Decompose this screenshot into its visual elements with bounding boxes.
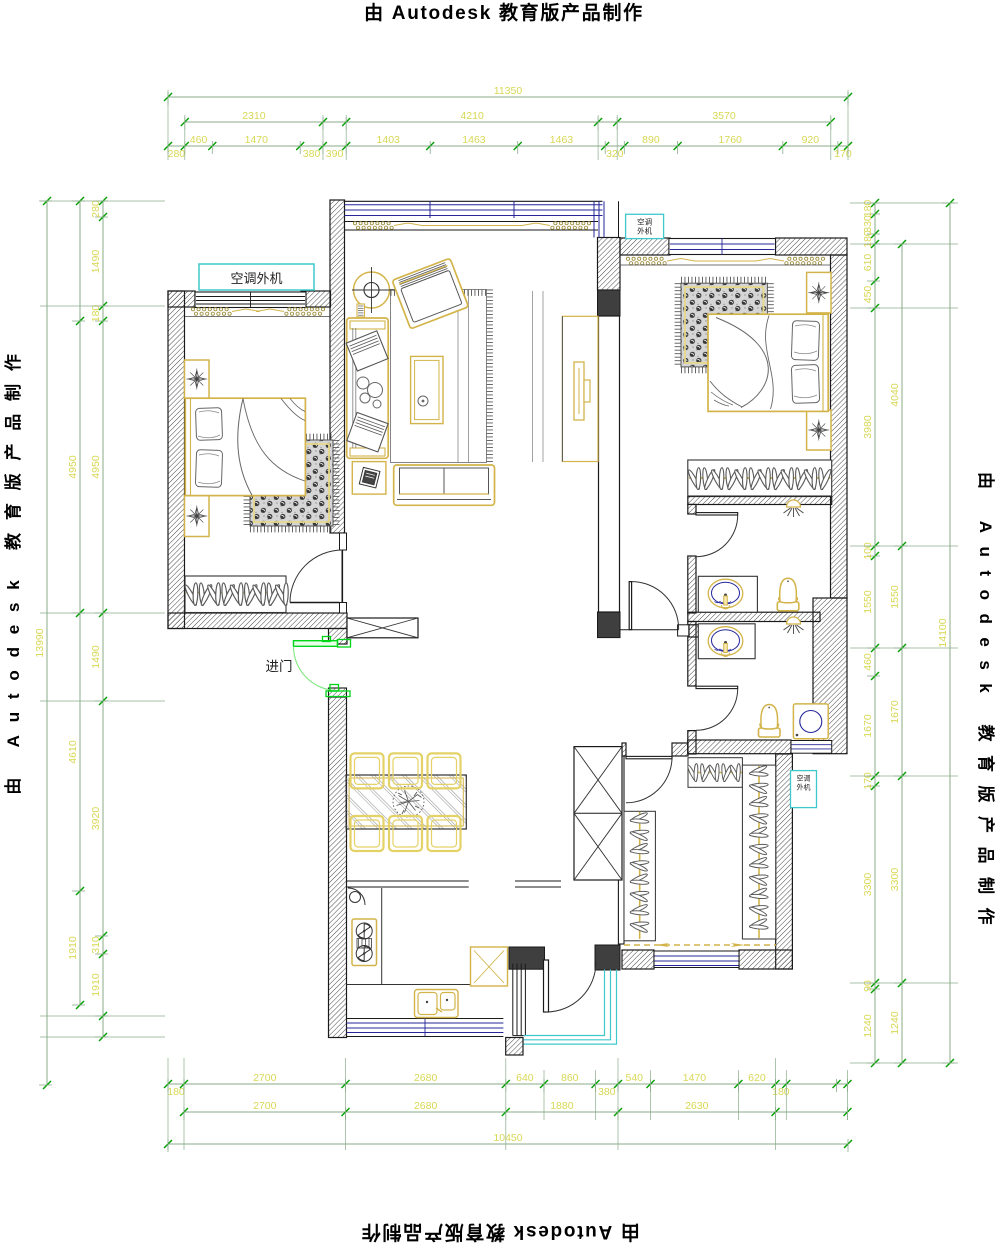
svg-text:1490: 1490 bbox=[90, 645, 102, 669]
svg-text:1760: 1760 bbox=[719, 134, 743, 146]
svg-text:1463: 1463 bbox=[462, 134, 486, 146]
svg-text:2310: 2310 bbox=[242, 110, 266, 122]
svg-text:540: 540 bbox=[625, 1072, 643, 1084]
svg-text:2680: 2680 bbox=[414, 1100, 438, 1112]
svg-text:2700: 2700 bbox=[253, 1072, 277, 1084]
svg-text:460: 460 bbox=[862, 653, 874, 671]
svg-text:空调: 空调 bbox=[797, 774, 811, 783]
svg-text:10450: 10450 bbox=[493, 1132, 522, 1144]
svg-text:460: 460 bbox=[190, 134, 208, 146]
svg-text:由 Autodesk 教育版产品制作: 由 Autodesk 教育版产品制作 bbox=[360, 1221, 640, 1244]
svg-text:180: 180 bbox=[862, 230, 874, 248]
svg-text:620: 620 bbox=[748, 1072, 766, 1084]
svg-text:1470: 1470 bbox=[683, 1072, 707, 1084]
svg-text:1550: 1550 bbox=[889, 585, 901, 609]
svg-text:2680: 2680 bbox=[414, 1072, 438, 1084]
svg-text:1470: 1470 bbox=[245, 134, 269, 146]
svg-text:14100: 14100 bbox=[937, 618, 949, 647]
svg-text:4040: 4040 bbox=[889, 383, 901, 407]
svg-text:1670: 1670 bbox=[889, 700, 901, 724]
svg-text:4950: 4950 bbox=[67, 455, 79, 479]
svg-text:450: 450 bbox=[862, 286, 874, 304]
svg-text:1240: 1240 bbox=[862, 1014, 874, 1038]
svg-text:由 Autodesk 教育版产品制作: 由 Autodesk 教育版产品制作 bbox=[364, 1, 644, 24]
svg-text:1880: 1880 bbox=[550, 1100, 574, 1112]
svg-text:920: 920 bbox=[802, 134, 820, 146]
svg-text:13990: 13990 bbox=[34, 628, 46, 657]
svg-text:860: 860 bbox=[561, 1072, 579, 1084]
svg-text:由 Autodesk 教育版产品制作: 由 Autodesk 教育版产品制作 bbox=[3, 341, 23, 794]
svg-text:11350: 11350 bbox=[494, 85, 523, 97]
svg-text:180: 180 bbox=[772, 1086, 790, 1098]
svg-text:380: 380 bbox=[303, 148, 321, 160]
svg-text:1490: 1490 bbox=[90, 250, 102, 274]
svg-text:280: 280 bbox=[90, 200, 102, 218]
svg-text:空调外机: 空调外机 bbox=[230, 271, 282, 286]
svg-text:610: 610 bbox=[862, 254, 874, 272]
svg-text:1670: 1670 bbox=[862, 714, 874, 738]
svg-text:3300: 3300 bbox=[889, 868, 901, 892]
svg-text:280: 280 bbox=[168, 148, 186, 160]
svg-text:100: 100 bbox=[862, 542, 874, 560]
svg-text:170: 170 bbox=[862, 772, 874, 790]
svg-text:890: 890 bbox=[642, 134, 660, 146]
svg-text:3570: 3570 bbox=[712, 110, 736, 122]
svg-text:4210: 4210 bbox=[460, 110, 484, 122]
svg-text:1240: 1240 bbox=[889, 1011, 901, 1035]
svg-text:由 Autodesk 教育版产品制作: 由 Autodesk 教育版产品制作 bbox=[976, 472, 996, 938]
svg-text:180: 180 bbox=[862, 200, 874, 218]
svg-text:1403: 1403 bbox=[377, 134, 401, 146]
svg-text:1463: 1463 bbox=[550, 134, 574, 146]
svg-text:1910: 1910 bbox=[67, 936, 79, 960]
svg-text:2630: 2630 bbox=[685, 1100, 709, 1112]
svg-text:4610: 4610 bbox=[67, 740, 79, 764]
svg-text:空调: 空调 bbox=[637, 217, 652, 227]
svg-text:3980: 3980 bbox=[862, 415, 874, 439]
svg-text:640: 640 bbox=[516, 1072, 534, 1084]
svg-text:170: 170 bbox=[834, 148, 852, 160]
svg-text:外机: 外机 bbox=[797, 783, 811, 792]
svg-text:4950: 4950 bbox=[90, 455, 102, 479]
svg-text:外机: 外机 bbox=[637, 226, 652, 236]
svg-text:180: 180 bbox=[167, 1086, 185, 1098]
svg-text:380: 380 bbox=[598, 1086, 616, 1098]
svg-text:90: 90 bbox=[862, 980, 874, 992]
svg-text:3300: 3300 bbox=[862, 873, 874, 897]
svg-text:330: 330 bbox=[862, 215, 874, 233]
svg-text:1910: 1910 bbox=[90, 973, 102, 997]
svg-text:320: 320 bbox=[606, 148, 624, 160]
svg-text:390: 390 bbox=[326, 148, 344, 160]
svg-text:2700: 2700 bbox=[253, 1100, 277, 1112]
svg-text:1550: 1550 bbox=[862, 590, 874, 614]
svg-text:310: 310 bbox=[90, 936, 102, 954]
svg-text:180: 180 bbox=[90, 305, 102, 323]
svg-text:3920: 3920 bbox=[90, 807, 102, 831]
svg-text:进门: 进门 bbox=[266, 659, 293, 674]
